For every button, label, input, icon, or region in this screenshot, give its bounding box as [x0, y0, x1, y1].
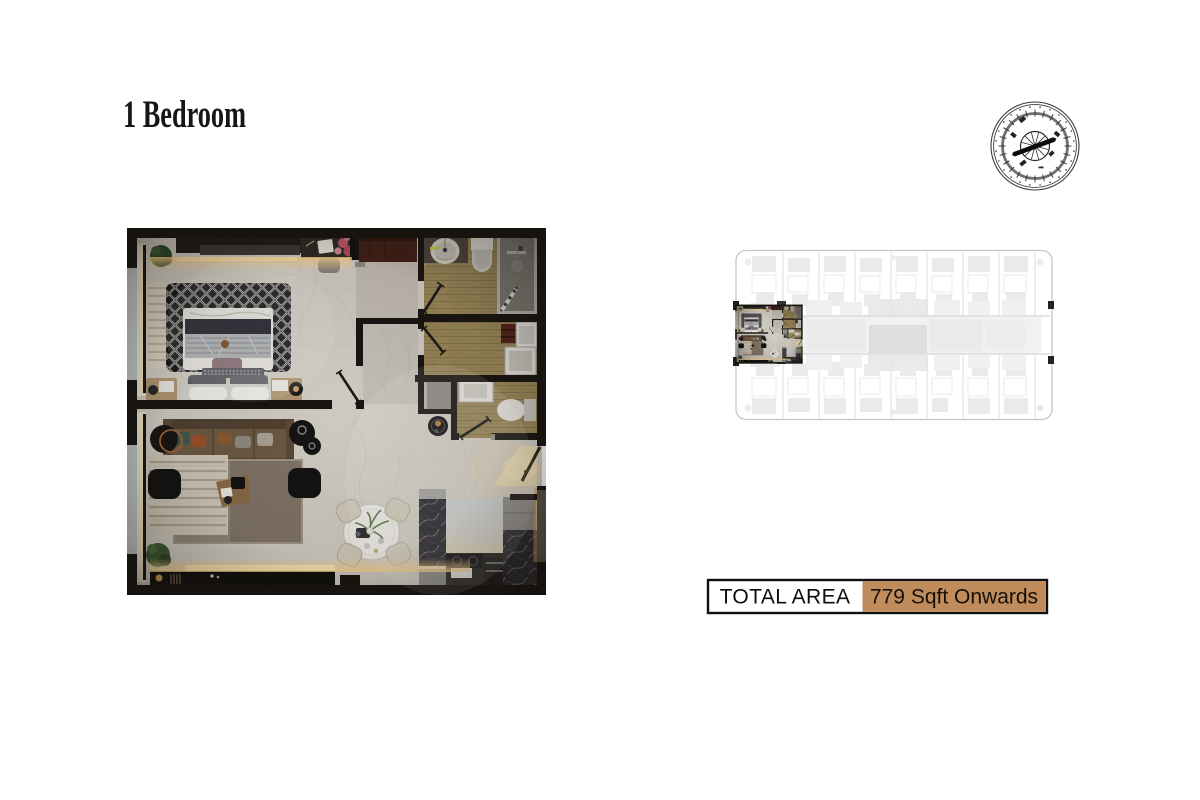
svg-text:TOTAL AREA: TOTAL AREA — [720, 586, 851, 609]
svg-text:1 Bedroom: 1 Bedroom — [123, 93, 246, 136]
svg-text:779 Sqft Onwards: 779 Sqft Onwards — [870, 586, 1038, 609]
